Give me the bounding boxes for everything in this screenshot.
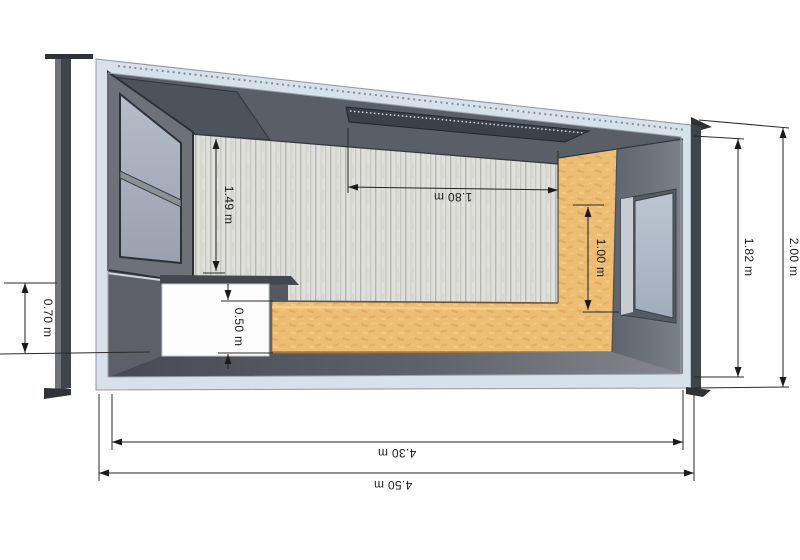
dim-label-front-sill-height: 0.70 m — [41, 299, 55, 338]
post-foot — [44, 388, 71, 399]
counter-side-shadow — [269, 284, 288, 302]
dim-label-interior-height: 1.82 m — [742, 238, 756, 277]
right-window-jamb — [621, 197, 633, 315]
dim-label-exterior-height: 2.00 m — [787, 238, 800, 277]
dim-label-bench-height: 0.50 m — [232, 308, 246, 347]
rim-strip — [691, 124, 701, 389]
dim-label-panel-height: 1.00 m — [594, 239, 608, 278]
post-cap — [45, 54, 93, 59]
dim-label-exterior-length: 4.50 m — [374, 478, 413, 492]
counter-cabinet — [162, 284, 269, 356]
dimension-exterior-length: 4.50 m — [99, 391, 694, 492]
rim-bottom-cap — [686, 387, 711, 397]
technical-drawing-canvas: 0.70 m 1.49 m 1.80 m 1.00 m 0.50 m 1.82 … — [0, 0, 800, 560]
dim-label-interior-length: 4.30 m — [378, 446, 417, 460]
dimension-interior-height: 1.82 m — [694, 136, 756, 377]
room-section-diagram: 0.70 m 1.49 m 1.80 m 1.00 m 0.50 m 1.82 … — [0, 0, 800, 560]
right-window-glass — [635, 193, 673, 318]
post-bar-highlight — [55, 59, 61, 390]
dimension-interior-length: 4.30 m — [112, 390, 683, 460]
right-wall — [612, 139, 683, 374]
dim-label-ceiling-fixture-span: 1.80 m — [434, 190, 473, 204]
dim-label-upper-wall-height: 1.49 m — [222, 186, 236, 225]
cut-wall-post — [44, 54, 93, 399]
right-window — [621, 189, 676, 323]
